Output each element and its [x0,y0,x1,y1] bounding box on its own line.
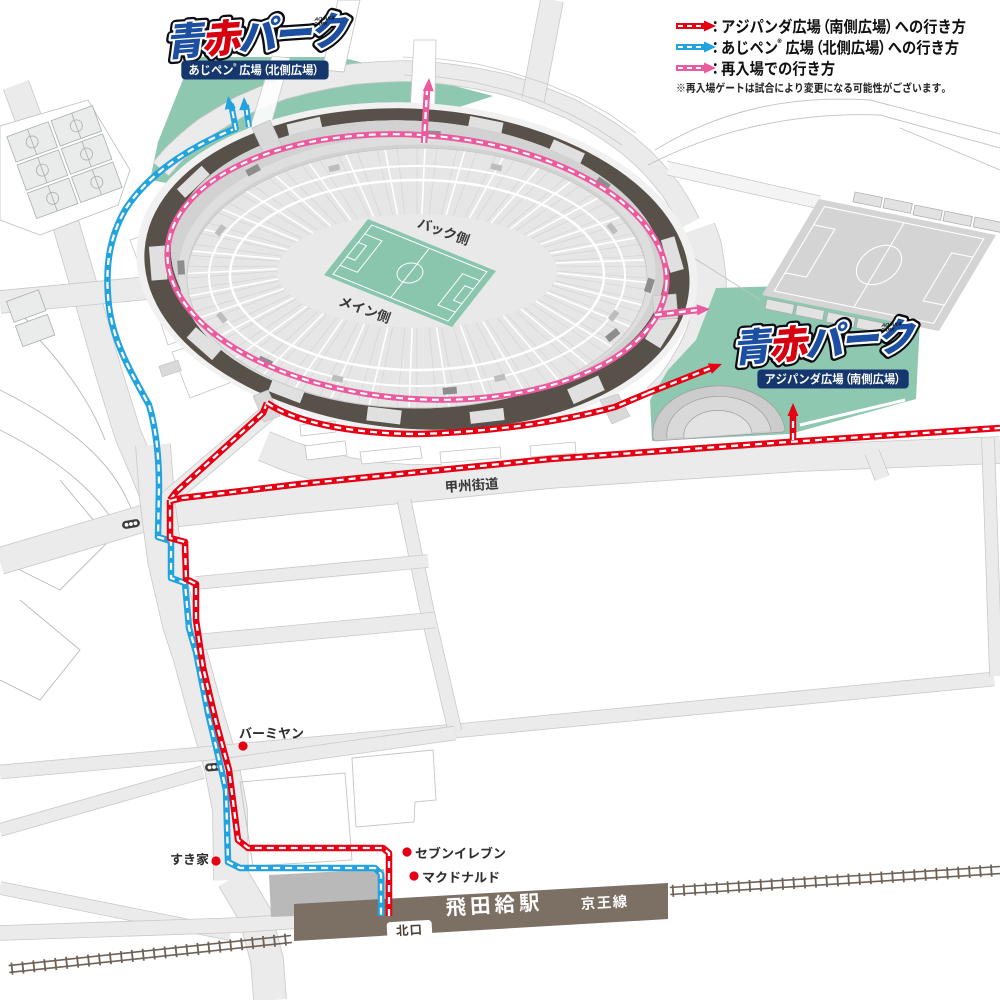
svg-text:PARK: PARK [313,21,328,28]
svg-text:PARK: PARK [880,327,895,334]
